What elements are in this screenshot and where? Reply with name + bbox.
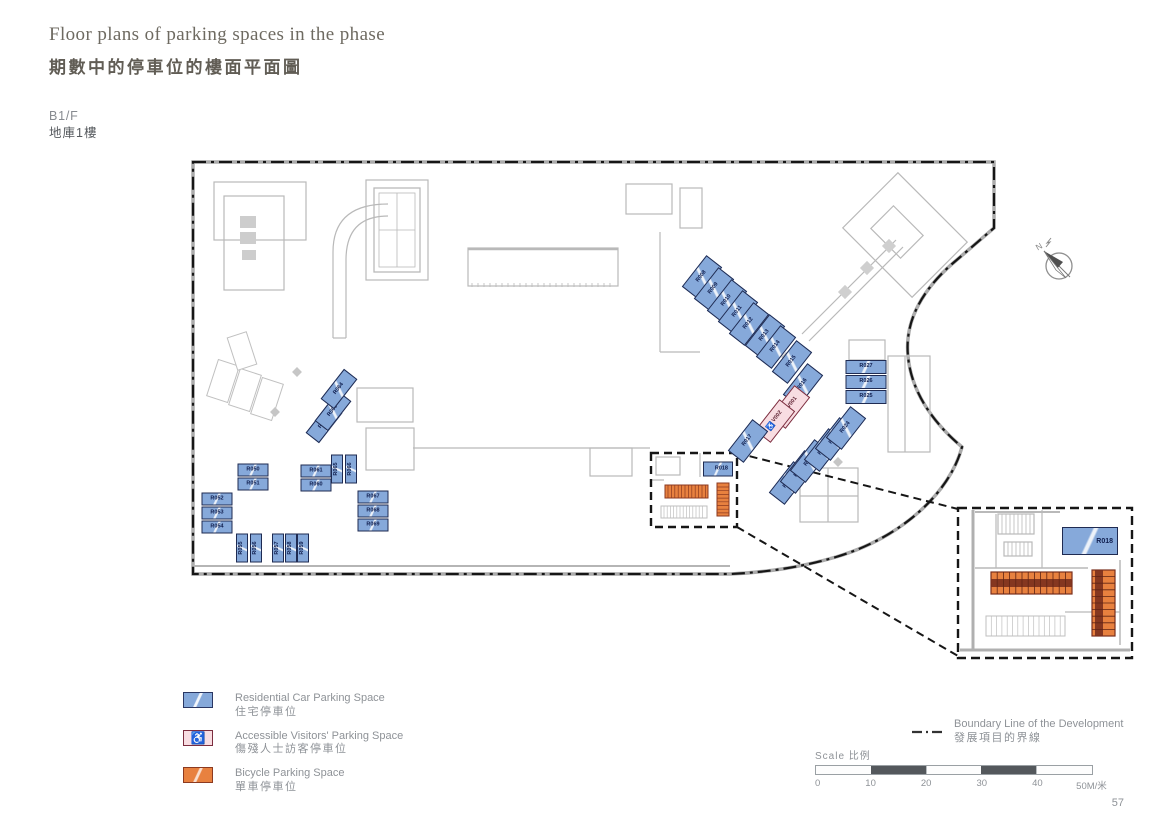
parking-space-label: R012 (743, 317, 755, 331)
parking-spaces-layer: R008R009R010R011R012R013R014R015R016♿V00… (0, 0, 1176, 831)
parking-space-label: R054 (210, 524, 223, 530)
parking-space-r018: R018 (703, 462, 733, 477)
legend-bicycle: Bicycle Parking Space 單車停車位 (183, 767, 403, 795)
scale-bar-segments (815, 765, 1093, 775)
parking-space-label: R018 (715, 466, 728, 472)
parking-space-r050: R050 (238, 464, 269, 477)
parking-space-r056: R056 (250, 534, 262, 563)
parking-space-label: R018 (1096, 538, 1113, 545)
parking-space-label: R027 (859, 364, 872, 370)
parking-space-r027: R027 (846, 360, 887, 374)
parking-space-r068: R068 (358, 505, 389, 518)
parking-space-r061: R061 (301, 465, 332, 478)
parking-space-r066: R066 (345, 455, 357, 484)
parking-space-label: R025 (859, 394, 872, 400)
accessible-swatch: ♿ (183, 730, 213, 746)
parking-space-r065: R065 (331, 455, 343, 484)
parking-space-r052: R052 (202, 493, 233, 506)
parking-space-r057: R057 (272, 534, 284, 563)
legend-accessible: ♿ Accessible Visitors' Parking Space 傷殘人… (183, 730, 403, 758)
scale-label: Scale 比例 (815, 747, 1093, 762)
parking-space-r069: R069 (358, 519, 389, 532)
brochure-page: Floor plans of parking spaces in the pha… (0, 0, 1176, 831)
legend-residential-zh: 住宅停車位 (235, 706, 385, 720)
parking-space-r051: R051 (238, 478, 269, 491)
residential-swatch (183, 692, 213, 708)
scale-ticks: 0 10 20 30 40 50M/米 (815, 778, 1093, 792)
boundary-line-swatch (912, 727, 946, 737)
legend-residential-en: Residential Car Parking Space (235, 692, 385, 706)
parking-space-label: R060 (309, 482, 322, 488)
parking-space-label: R050 (246, 467, 259, 473)
parking-space-label: R014 (770, 340, 782, 354)
scale-bar: Scale 比例 0 10 20 30 40 50M/米 (815, 747, 1093, 792)
parking-space-label: R055 (239, 541, 245, 554)
parking-space-r055: R055 (236, 534, 248, 563)
parking-space-r060: R060 (301, 479, 332, 492)
parking-space-r017: R017 (728, 419, 768, 463)
parking-space-label: R056 (253, 541, 259, 554)
parking-space-r026: R026 (846, 375, 887, 389)
parking-space-r067: R067 (358, 491, 389, 504)
legend: Residential Car Parking Space 住宅停車位 ♿ Ac… (183, 692, 403, 805)
parking-space-label: R067 (366, 494, 379, 500)
legend-residential: Residential Car Parking Space 住宅停車位 (183, 692, 403, 720)
parking-space-label: R015 (786, 355, 798, 369)
parking-space-r058: R058 (285, 534, 297, 563)
parking-space-label: R068 (366, 508, 379, 514)
parking-space-label: R064 (333, 382, 345, 396)
parking-space-r018: R018 (1062, 527, 1118, 555)
wheelchair-icon: ♿ (191, 731, 206, 745)
legend-accessible-zh: 傷殘人士訪客停車位 (235, 743, 403, 757)
parking-space-label: R061 (309, 468, 322, 474)
parking-space-label: R024 (840, 421, 852, 435)
parking-space-label: R059 (300, 541, 306, 554)
parking-space-r025: R025 (846, 390, 887, 404)
legend-bicycle-en: Bicycle Parking Space (235, 767, 344, 781)
parking-space-label: R065 (334, 462, 340, 475)
parking-space-label: R052 (210, 496, 223, 502)
parking-space-r059: R059 (297, 534, 309, 563)
parking-space-label: R051 (246, 481, 259, 487)
parking-space-r053: R053 (202, 507, 233, 520)
bicycle-swatch (183, 767, 213, 783)
legend-boundary-en: Boundary Line of the Development (954, 718, 1123, 732)
parking-space-label: R069 (366, 522, 379, 528)
parking-space-label: R057 (275, 541, 281, 554)
parking-space-label: R017 (742, 434, 754, 448)
legend-accessible-en: Accessible Visitors' Parking Space (235, 730, 403, 744)
legend-boundary-zh: 發展項目的界線 (954, 732, 1123, 746)
legend-bicycle-zh: 單車停車位 (235, 781, 344, 795)
parking-space-label: R026 (859, 379, 872, 385)
parking-space-r054: R054 (202, 521, 233, 534)
page-number: 57 (1112, 797, 1124, 809)
parking-space-label: R053 (210, 510, 223, 516)
parking-space-label: R058 (288, 541, 294, 554)
parking-space-label: V002 (772, 410, 784, 424)
legend-boundary: Boundary Line of the Development 發展項目的界線 (912, 718, 1123, 746)
parking-space-label: R066 (348, 462, 354, 475)
